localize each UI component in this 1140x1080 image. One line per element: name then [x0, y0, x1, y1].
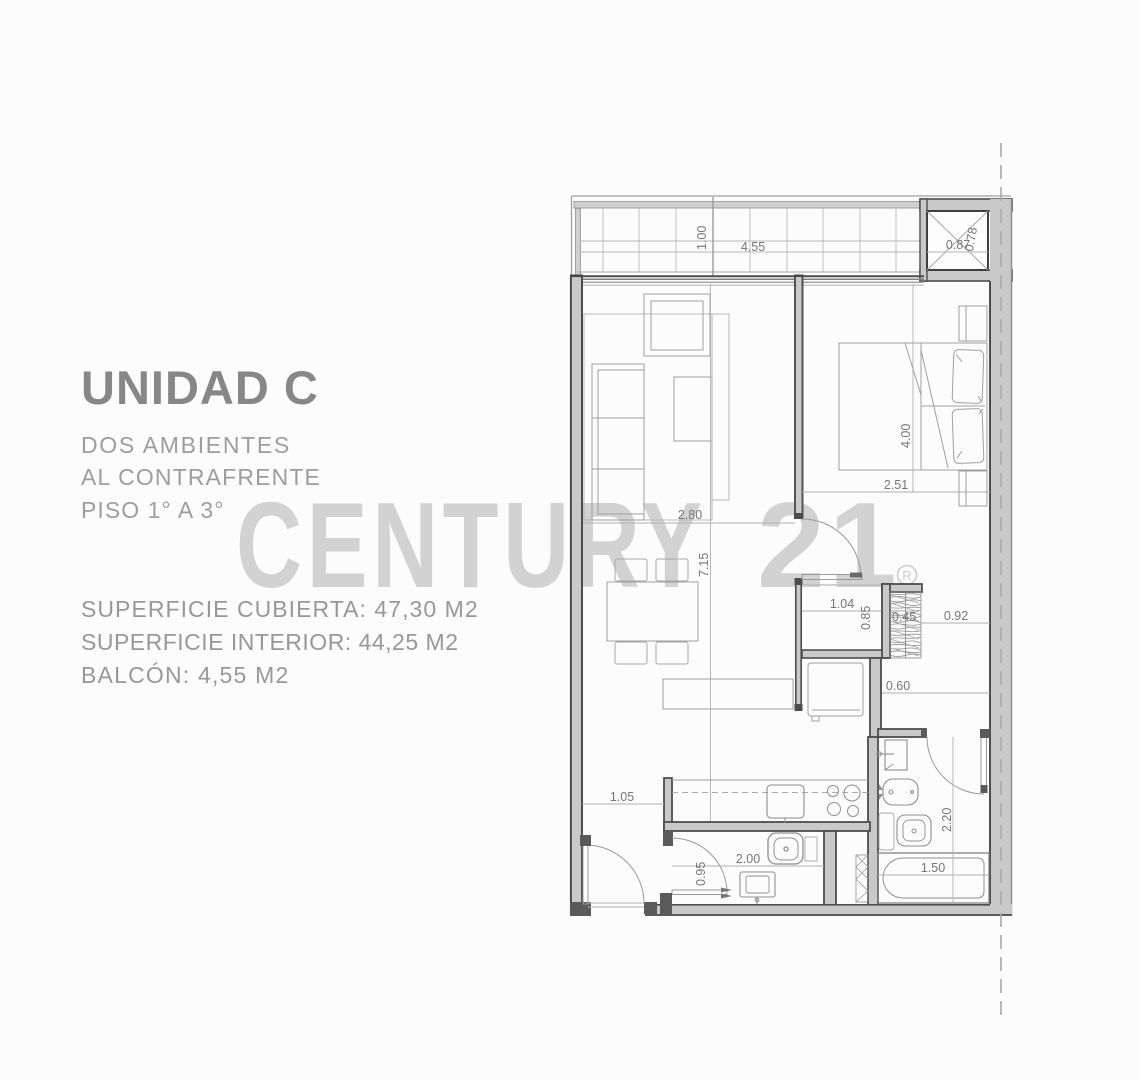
svg-text:0.45: 0.45	[892, 610, 916, 624]
svg-text:7.15: 7.15	[697, 553, 711, 577]
svg-text:1.00: 1.00	[695, 226, 709, 250]
svg-text:DOS AMBIENTES: DOS AMBIENTES	[81, 432, 291, 458]
svg-text:BALCÓN: 4,55 M2: BALCÓN: 4,55 M2	[81, 662, 289, 688]
svg-text:0.60: 0.60	[886, 679, 910, 693]
svg-text:4.00: 4.00	[899, 424, 913, 448]
svg-text:1.50: 1.50	[921, 861, 945, 875]
svg-text:1.04: 1.04	[830, 597, 854, 611]
svg-text:PISO 1° A 3°: PISO 1° A 3°	[81, 497, 225, 523]
svg-text:R: R	[902, 568, 911, 583]
svg-text:2.00: 2.00	[736, 852, 760, 866]
svg-text:21: 21	[757, 477, 901, 613]
svg-text:2.80: 2.80	[678, 508, 702, 522]
svg-text:0.85: 0.85	[859, 606, 873, 630]
svg-text:0.92: 0.92	[944, 609, 968, 623]
svg-text:2.51: 2.51	[884, 478, 908, 492]
svg-text:SUPERFICIE CUBIERTA: 47,30 M2: SUPERFICIE CUBIERTA: 47,30 M2	[81, 596, 479, 622]
svg-text:2.20: 2.20	[940, 808, 954, 832]
svg-text:1.05: 1.05	[610, 790, 634, 804]
svg-text:AL CONTRAFRENTE: AL CONTRAFRENTE	[81, 464, 321, 490]
svg-text:CENTURY: CENTURY	[236, 476, 706, 613]
svg-text:SUPERFICIE INTERIOR: 44,25 M2: SUPERFICIE INTERIOR: 44,25 M2	[81, 629, 458, 655]
svg-text:4.55: 4.55	[741, 240, 765, 254]
svg-text:UNIDAD C: UNIDAD C	[81, 361, 319, 414]
svg-text:0.95: 0.95	[694, 862, 708, 886]
